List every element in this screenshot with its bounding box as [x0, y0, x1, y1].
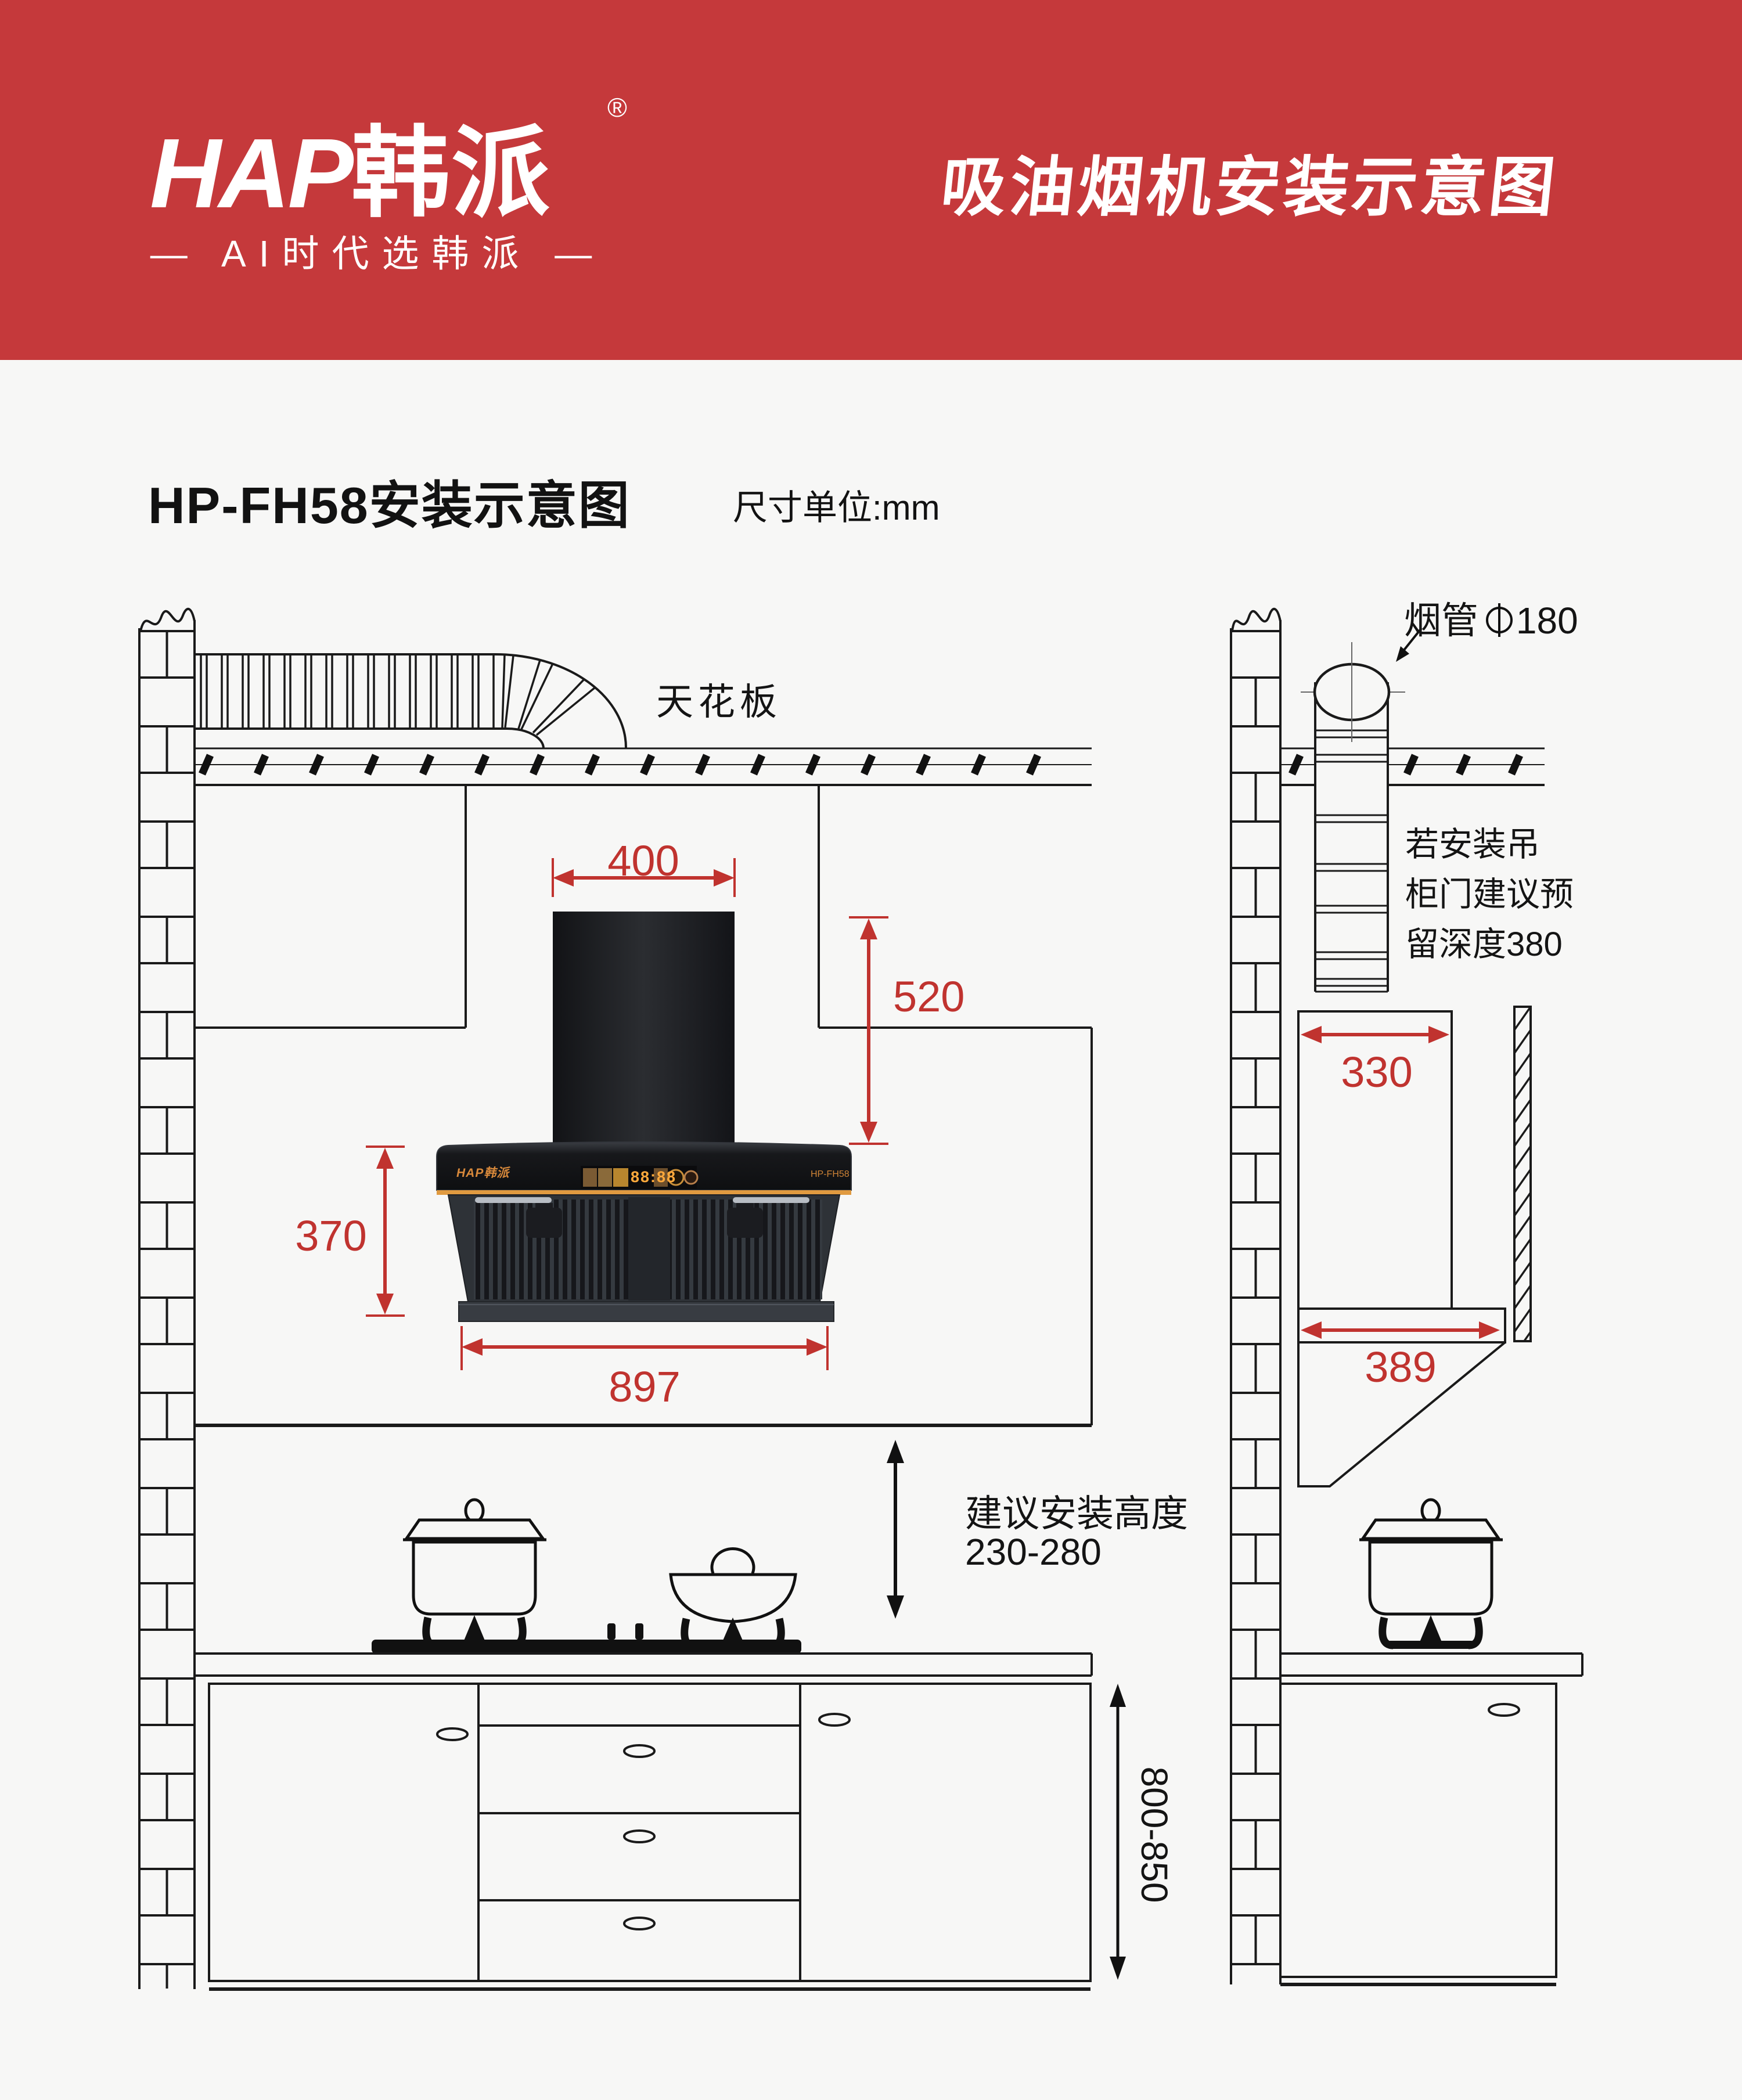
dim-520-label: 520	[893, 972, 964, 1021]
ceiling-label: 天花板	[656, 672, 782, 726]
flue-diameter-label: 180	[1516, 600, 1578, 642]
dim-800-850-arrow	[1110, 1684, 1126, 1980]
install-height-label: 建议安装高度	[965, 1484, 1188, 1537]
dim-800-850-label: 800-850	[1133, 1701, 1176, 1968]
hood-logo: HAP韩派	[456, 1164, 509, 1181]
flue-label: 烟管	[1404, 600, 1478, 642]
dim-389-arrow	[1301, 1321, 1500, 1339]
install-height-value: 230-280	[965, 1530, 1102, 1573]
cabinet-note: 若安装吊 柜门建议预 留深度380	[1405, 820, 1574, 970]
flue-pipe-side	[1301, 642, 1405, 992]
dim-897-label: 897	[586, 1362, 703, 1411]
base-cabinet-side	[1280, 1684, 1556, 1984]
countertop-side	[1280, 1654, 1582, 1676]
cooktop-front	[372, 1500, 801, 1654]
cabinet-note-line3: 留深度380	[1405, 920, 1574, 970]
flue-callout: 烟管 180	[1404, 591, 1578, 644]
page: HAP韩派 ® — AI时代选韩派 — 吸油烟机安装示意图 HP-FH58安装示…	[0, 0, 1742, 2100]
cabinet-note-line2: 柜门建议预	[1405, 870, 1574, 920]
hood-display-time: 88:88	[631, 1168, 676, 1186]
front-wall-brick	[138, 603, 196, 1989]
dim-400-label: 400	[585, 836, 701, 885]
hood-chimney	[553, 912, 735, 1147]
hood-model-label: HP-FH58	[811, 1169, 850, 1180]
installation-diagram-svg	[0, 0, 1742, 2100]
ceiling-band-front	[195, 748, 1092, 785]
dim-520-arrow	[849, 917, 888, 1144]
cabinet-note-line1: 若安装吊	[1405, 820, 1574, 870]
flex-duct-front	[195, 654, 626, 748]
dim-330-arrow	[1301, 1026, 1449, 1043]
phi-diameter-icon	[1483, 602, 1516, 638]
dim-389-label: 389	[1343, 1342, 1459, 1392]
cooktop-side	[1359, 1500, 1503, 1649]
dim-330-label: 330	[1319, 1047, 1435, 1097]
install-height-arrow	[887, 1440, 904, 1619]
wall-panel-side	[1514, 1007, 1531, 1341]
countertop-front	[195, 1654, 1092, 1676]
base-cabinet-front	[209, 1684, 1090, 1989]
dim-370-label: 370	[273, 1211, 389, 1260]
side-wall-brick	[1230, 603, 1282, 1984]
